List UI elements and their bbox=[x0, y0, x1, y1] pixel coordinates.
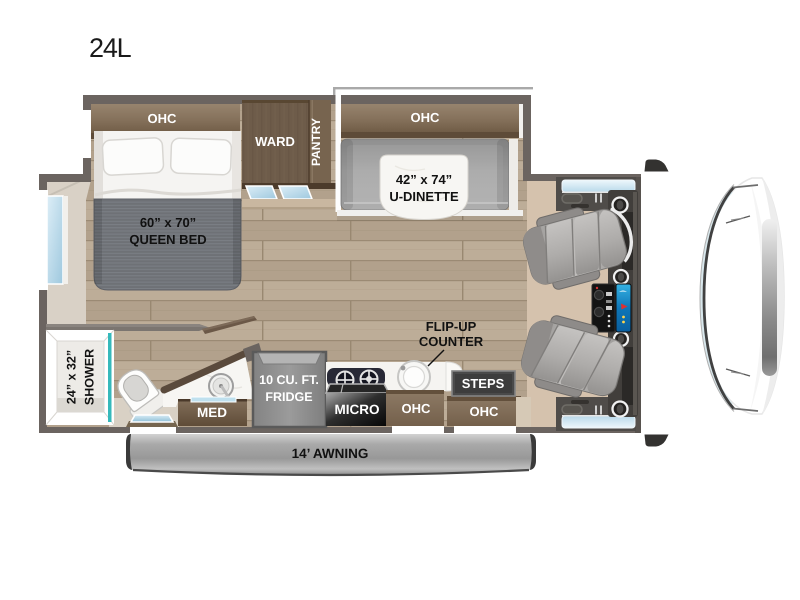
svg-text:OHC: OHC bbox=[470, 404, 500, 419]
svg-text:24L: 24L bbox=[89, 33, 132, 63]
svg-text:OHC: OHC bbox=[411, 110, 441, 125]
svg-text:60” x 70”: 60” x 70” bbox=[140, 215, 196, 230]
svg-text:FRIDGE: FRIDGE bbox=[265, 390, 312, 404]
svg-text:OHC: OHC bbox=[402, 401, 432, 416]
svg-text:COUNTER: COUNTER bbox=[419, 334, 484, 349]
svg-text:STEPS: STEPS bbox=[462, 376, 505, 391]
svg-text:PANTRY: PANTRY bbox=[309, 118, 323, 166]
svg-text:SHOWER: SHOWER bbox=[82, 349, 96, 405]
svg-text:14’ AWNING: 14’ AWNING bbox=[292, 446, 369, 461]
svg-text:MICRO: MICRO bbox=[335, 402, 380, 417]
svg-text:QUEEN BED: QUEEN BED bbox=[129, 232, 206, 247]
svg-text:U-DINETTE: U-DINETTE bbox=[389, 189, 459, 204]
svg-text:MED: MED bbox=[197, 405, 227, 420]
svg-text:24” x 32”: 24” x 32” bbox=[64, 350, 78, 404]
svg-text:10 CU. FT.: 10 CU. FT. bbox=[259, 373, 319, 387]
svg-text:FLIP-UP: FLIP-UP bbox=[426, 319, 477, 334]
svg-text:WARD: WARD bbox=[255, 134, 295, 149]
svg-text:42” x 74”: 42” x 74” bbox=[396, 172, 452, 187]
svg-text:OHC: OHC bbox=[148, 111, 178, 126]
